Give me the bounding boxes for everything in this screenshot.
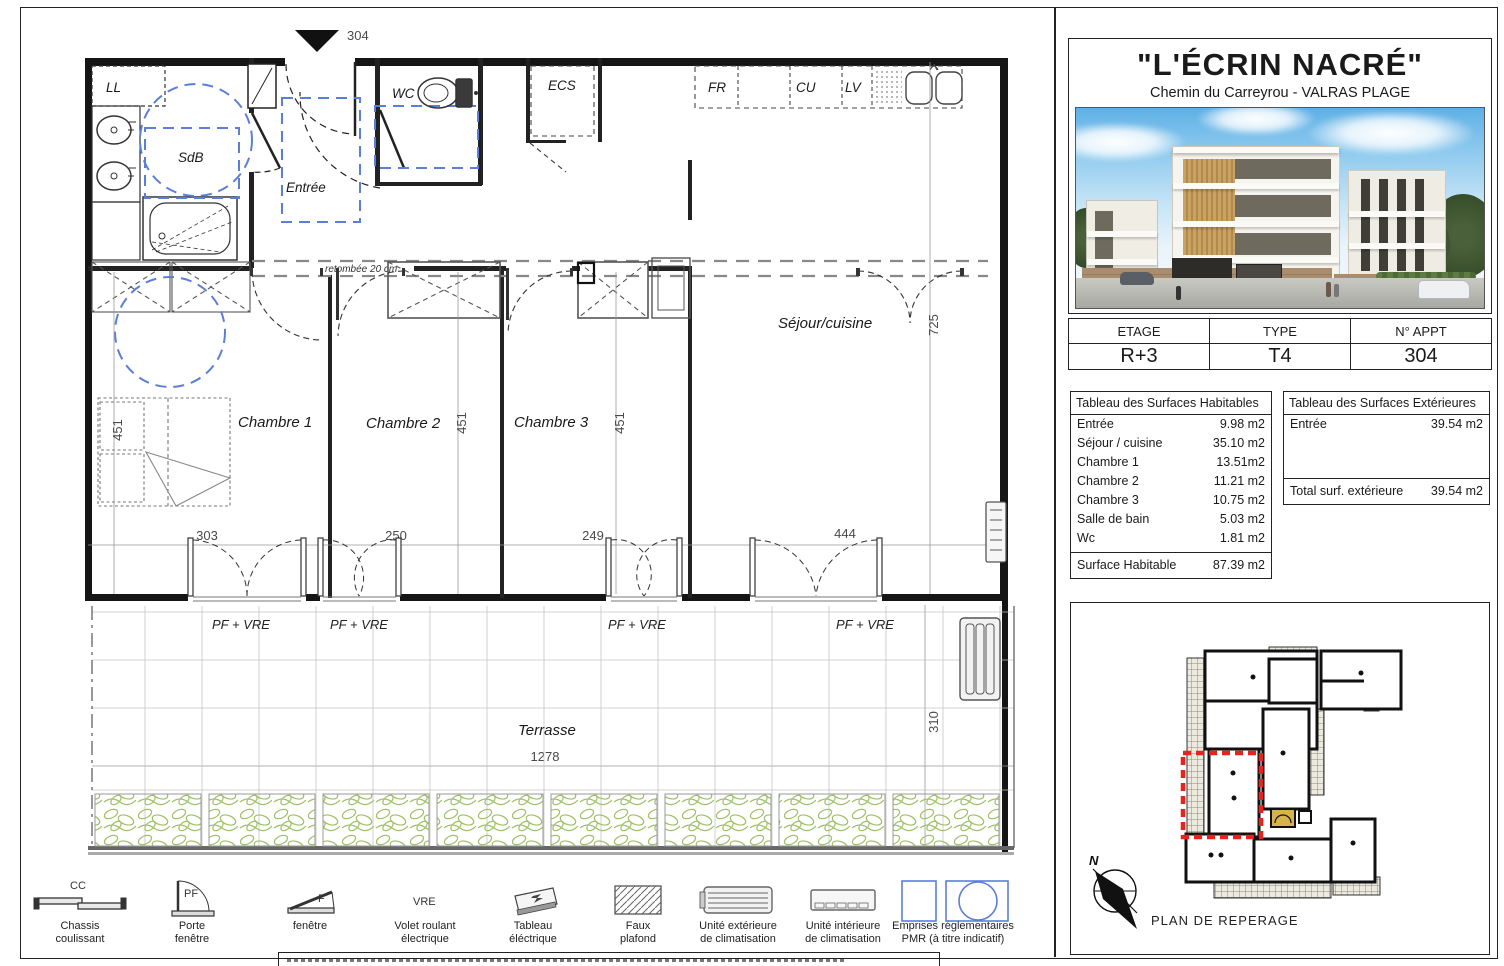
- svg-text:304: 304: [347, 28, 369, 43]
- ac-outdoor-unit: [960, 618, 1000, 700]
- ecs-door: [530, 143, 566, 172]
- unite-exterieure-icon: [678, 880, 798, 920]
- retombee-note: retombée 20 cm: [325, 264, 397, 275]
- compass: N: [1089, 853, 1137, 929]
- room-label-cu: CU: [796, 80, 816, 95]
- location-plan-box: N PLAN DE REPERAGE: [1070, 602, 1490, 955]
- surfaces-habitables-title: Tableau des Surfaces Habitables: [1071, 392, 1271, 415]
- floor-plan: 304: [0, 0, 1052, 880]
- table-row: Séjour / cuisine35.10 m2: [1071, 434, 1271, 453]
- project-address: Chemin du Carreyrou - VALRAS PLAGE: [1069, 85, 1491, 101]
- table-row: Chambre 310.75 m2: [1071, 491, 1271, 510]
- building-render: [1075, 107, 1485, 309]
- table-row: Salle de bain5.03 m2: [1071, 510, 1271, 529]
- etage-value: R+3: [1069, 344, 1210, 369]
- table-row: Chambre 113.51m2: [1071, 453, 1271, 472]
- terrace-doors: [188, 538, 882, 601]
- room-label-ecs: ECS: [548, 78, 576, 93]
- legend-item-unite-exterieure: Unité extérieurede climatisation: [678, 880, 798, 956]
- room-label-wc: WC: [392, 86, 415, 101]
- bathtub: [92, 197, 237, 260]
- porte-fenetre-icon: [132, 880, 252, 920]
- window-label-2: PF + VRE: [330, 617, 388, 632]
- surface-habitable-total: Surface Habitable87.39 m2: [1071, 552, 1271, 578]
- laundry-and-sinks: [92, 66, 165, 202]
- project-title: "L'ÉCRIN NACRÉ": [1069, 47, 1491, 83]
- legend-item-fenetre: F fenêtre: [250, 880, 370, 956]
- svg-text:725: 725: [926, 314, 941, 336]
- legend-item-tableau-electrique: Tableauéléctrique: [473, 880, 593, 956]
- room-label-sejour: Séjour/cuisine: [778, 315, 872, 332]
- room-label-ch1: Chambre 1: [238, 414, 312, 431]
- svg-text:310: 310: [926, 711, 941, 733]
- column-separator: [1054, 7, 1056, 957]
- title-block: "L'ÉCRIN NACRÉ" Chemin du Carreyrou - VA…: [1068, 38, 1492, 314]
- room-label-terrasse: Terrasse: [518, 722, 576, 739]
- entrance-marker: 304: [295, 28, 369, 52]
- kitchen-counter: [695, 64, 962, 108]
- legend-item-vre: VRE Volet roulantélectrique: [365, 880, 485, 956]
- room-label-ch2: Chambre 2: [366, 415, 441, 432]
- room-label-sdb: SdB: [178, 150, 204, 165]
- type-header: TYPE: [1210, 319, 1351, 344]
- table-row: Chambre 211.21 m2: [1071, 472, 1271, 491]
- room-label-ll: LL: [106, 80, 121, 95]
- svg-text:451: 451: [612, 412, 627, 434]
- north-label: N: [1089, 853, 1099, 868]
- plan-sheet: 304: [0, 0, 1504, 966]
- table-row: Entrée9.98 m2: [1071, 415, 1271, 434]
- window-label-3: PF + VRE: [608, 617, 666, 632]
- svg-text:451: 451: [110, 419, 125, 441]
- planters: [95, 794, 999, 846]
- svg-text:249: 249: [582, 528, 604, 543]
- apartment-info-table: ETAGE TYPE N° APPT R+3 T4 304: [1068, 318, 1492, 370]
- svg-text:451: 451: [454, 412, 469, 434]
- surfaces-habitables-table: Tableau des Surfaces Habitables Entrée9.…: [1070, 391, 1272, 579]
- type-value: T4: [1210, 344, 1351, 369]
- room-label-lv: LV: [845, 80, 863, 95]
- window-label-1: PF + VRE: [212, 617, 270, 632]
- surfaces-exterieures-title: Tableau des Surfaces Extérieures: [1284, 392, 1489, 415]
- room-label-fr: FR: [708, 80, 726, 95]
- toilet: [418, 78, 478, 108]
- legend-item-pmr: Emprises réglementairesPMR (à titre indi…: [878, 880, 1028, 956]
- svg-text:444: 444: [834, 526, 856, 541]
- svg-text:303: 303: [196, 528, 218, 543]
- fenetre-icon: [250, 880, 370, 920]
- room-label-entree: Entrée: [286, 180, 326, 195]
- dimension-texts: 451 451 451 725 303 250 249 444 1278 310: [110, 314, 941, 764]
- location-plan: N PLAN DE REPERAGE: [1071, 603, 1488, 953]
- ac-indoor-unit: [986, 502, 1006, 562]
- appt-header: N° APPT: [1351, 319, 1491, 344]
- room-label-ch3: Chambre 3: [514, 414, 589, 431]
- table-row: Wc1.81 m2: [1071, 529, 1271, 548]
- window-label-4: PF + VRE: [836, 617, 894, 632]
- legend-item-porte-fenetre: PF Portefenêtre: [132, 880, 252, 956]
- location-plan-caption: PLAN DE REPERAGE: [1151, 913, 1299, 928]
- appt-value: 304: [1351, 344, 1491, 369]
- wc-door: [380, 110, 404, 168]
- footer-disclaimer-strip: [278, 952, 940, 966]
- tableau-electrique-icon: [473, 880, 593, 920]
- table-row: Entrée39.54 m2: [1284, 415, 1489, 434]
- interior-walls: [88, 58, 692, 598]
- pmr-icon: [878, 880, 1028, 924]
- legend-item-chassis-coulissant: CC Chassiscoulissant: [20, 880, 140, 956]
- sdb-door: [252, 113, 280, 172]
- bed: [98, 398, 230, 506]
- etage-header: ETAGE: [1069, 319, 1210, 344]
- svg-text:1278: 1278: [531, 749, 560, 764]
- surfaces-exterieures-table: Tableau des Surfaces Extérieures Entrée3…: [1283, 391, 1490, 505]
- ecs-closet: [531, 66, 594, 136]
- surface-exterieure-total: Total surf. extérieure39.54 m2: [1284, 478, 1489, 504]
